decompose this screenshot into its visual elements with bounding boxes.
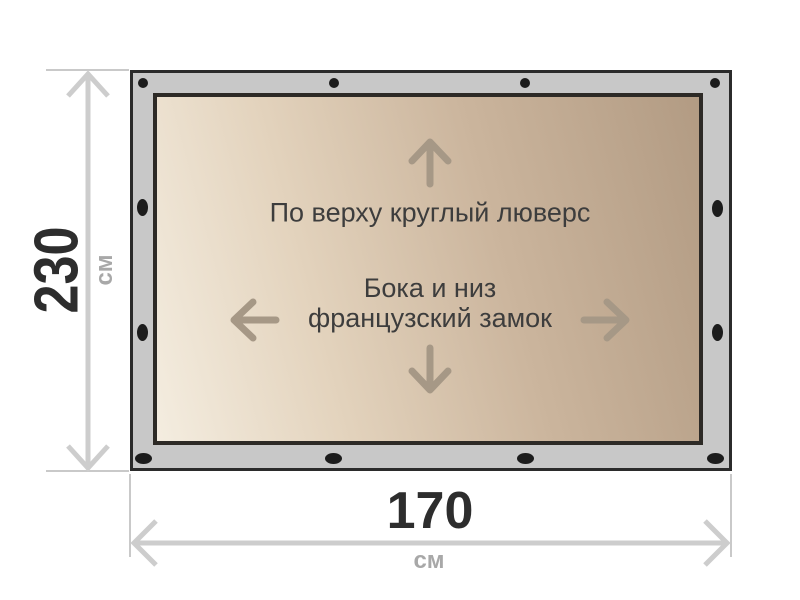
arrow-right-icon [584, 302, 626, 338]
height-value: 230 [22, 227, 93, 314]
diagram-canvas: По верху круглый люверс Бока и низ франц… [0, 0, 800, 600]
width-value: 170 [387, 481, 474, 541]
sides-bottom-note-line2: французский замок [308, 303, 552, 333]
top-edge-note: По верху круглый люверс [270, 198, 591, 229]
arrow-down-icon [412, 348, 448, 390]
height-unit: см [91, 254, 119, 285]
arrow-left-icon [234, 302, 276, 338]
width-unit: см [413, 547, 444, 575]
arrow-up-icon [412, 142, 448, 184]
sides-bottom-note: Бока и низ французский замок [308, 273, 552, 333]
sides-bottom-note-line1: Бока и низ [308, 273, 552, 303]
